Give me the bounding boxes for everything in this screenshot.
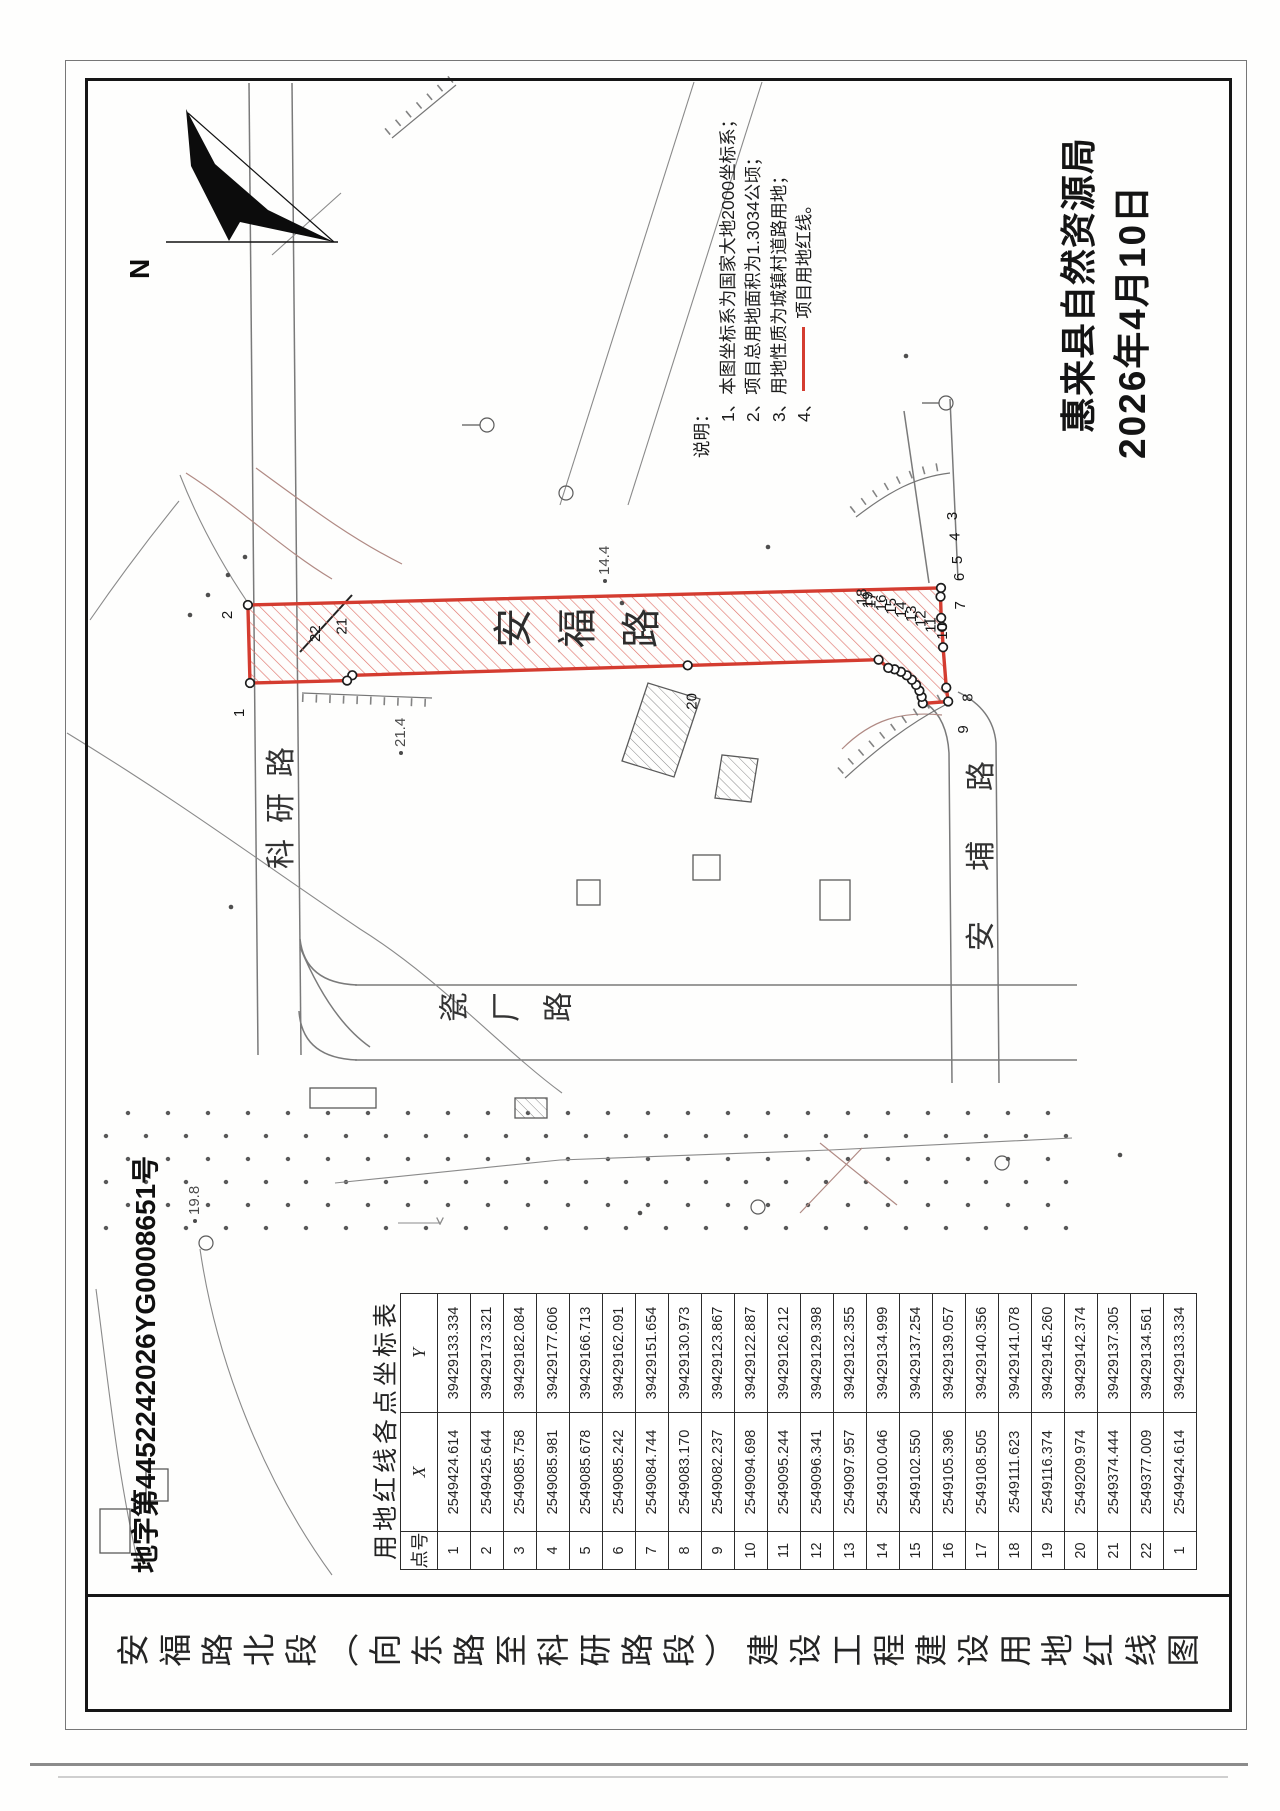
table-cell: 4 (537, 1532, 570, 1570)
scanned-redline-map-page: { "titles": { "drawing_title": "安福路北段（向东… (0, 0, 1280, 1811)
table-cell: 39429133.334 (438, 1294, 471, 1413)
note-item4-text: 项目用地红线。 (794, 196, 814, 319)
table-row: 152549102.55039429137.254 (900, 1294, 933, 1570)
table-row: 52549085.67839429166.713 (570, 1294, 603, 1570)
table-cell: 14 (867, 1532, 900, 1570)
table-cell: 19 (1032, 1532, 1065, 1570)
table-cell: 13 (834, 1532, 867, 1570)
coordinate-table-title: 用地红线各点坐标表 (366, 1299, 402, 1560)
table-cell: 39429141.078 (999, 1294, 1032, 1413)
table-cell: 17 (966, 1532, 999, 1570)
table-cell: 2549094.698 (735, 1413, 768, 1532)
table-cell: 2549095.244 (768, 1413, 801, 1532)
table-cell: 39429129.398 (801, 1294, 834, 1413)
table-row: 102549094.69839429122.887 (735, 1294, 768, 1570)
notes-block: 说明： 1、本图坐标系为国家大地2000坐标系； 2、项目总用地面积为1.303… (690, 111, 818, 458)
table-cell: 3 (504, 1532, 537, 1570)
road-label-anfu: 安福路 (492, 603, 684, 661)
authority-name: 惠来县自然资源局 (1050, 137, 1102, 433)
table-row: 212549374.44439429137.305 (1098, 1294, 1131, 1570)
document-number: 地字第4452242026YG0008651号 (124, 1156, 164, 1573)
table-cell: 39429123.867 (702, 1294, 735, 1413)
table-cell: 16 (933, 1532, 966, 1570)
table-cell: 22 (1131, 1532, 1164, 1570)
table-row: 182549111.62339429141.078 (999, 1294, 1032, 1570)
table-cell: 39429177.606 (537, 1294, 570, 1413)
table-cell: 1 (438, 1532, 471, 1570)
table-cell: 2549424.614 (438, 1413, 471, 1532)
table-cell: 8 (669, 1532, 702, 1570)
table-header-cell: Y (401, 1294, 438, 1413)
table-cell: 7 (636, 1532, 669, 1570)
table-cell: 39429130.973 (669, 1294, 702, 1413)
table-cell: 2549116.374 (1032, 1413, 1065, 1532)
scan-edge-artifact (30, 1763, 1248, 1766)
coordinate-table-body: 12549424.61439429133.33422549425.6443942… (438, 1294, 1197, 1570)
table-cell: 2549084.744 (636, 1413, 669, 1532)
table-cell: 2549085.981 (537, 1413, 570, 1532)
table-row: 32549085.75839429182.084 (504, 1294, 537, 1570)
note-item4-prefix: 4、 (794, 395, 814, 422)
table-row: 122549096.34139429129.398 (801, 1294, 834, 1570)
table-cell: 2549083.170 (669, 1413, 702, 1532)
table-cell: 15 (900, 1532, 933, 1570)
table-cell: 2549082.237 (702, 1413, 735, 1532)
note-item: 3、用地性质为城镇村道路用地； (767, 111, 793, 422)
table-cell: 2549102.550 (900, 1413, 933, 1532)
redline-legend-swatch (802, 327, 805, 391)
table-row: 92549082.23739429123.867 (702, 1294, 735, 1570)
table-row: 12549424.61439429133.334 (1164, 1294, 1197, 1570)
table-cell: 2549424.614 (1164, 1413, 1197, 1532)
table-cell: 39429126.212 (768, 1294, 801, 1413)
table-cell: 9 (702, 1532, 735, 1570)
table-cell: 2549097.957 (834, 1413, 867, 1532)
table-cell: 39429173.321 (471, 1294, 504, 1413)
table-cell: 1 (1164, 1532, 1197, 1570)
table-cell: 39429151.654 (636, 1294, 669, 1413)
table-row: 12549424.61439429133.334 (438, 1294, 471, 1570)
table-row: 132549097.95739429132.355 (834, 1294, 867, 1570)
table-cell: 2549105.396 (933, 1413, 966, 1532)
table-cell: 39429137.254 (900, 1294, 933, 1413)
table-row: 172549108.50539429140.356 (966, 1294, 999, 1570)
table-cell: 2549085.758 (504, 1413, 537, 1532)
north-label: N (124, 259, 156, 279)
table-cell: 11 (768, 1532, 801, 1570)
drawing-title: 安福路北段（向东路至科研路段）建设工程建设用地红线图 (116, 1629, 1208, 1677)
note-item: 2、项目总用地面积为1.3034公顷； (741, 111, 767, 422)
road-label-anbu: 安埔路 (956, 711, 1000, 951)
coordinate-table-header: 点号XY (401, 1294, 438, 1570)
spot-elevation: 21.4 (392, 718, 409, 755)
table-row: 42549085.98139429177.606 (537, 1294, 570, 1570)
table-cell: 39429140.356 (966, 1294, 999, 1413)
table-cell: 39429134.999 (867, 1294, 900, 1413)
table-cell: 2549108.505 (966, 1413, 999, 1532)
table-header-cell: X (401, 1413, 438, 1532)
table-row: 162549105.39639429139.057 (933, 1294, 966, 1570)
table-cell: 12 (801, 1532, 834, 1570)
table-row: 112549095.24439429126.212 (768, 1294, 801, 1570)
table-row: 192549116.37439429145.260 (1032, 1294, 1065, 1570)
note-item: 1、本图坐标系为国家大地2000坐标系； (716, 111, 742, 422)
table-cell: 39429137.305 (1098, 1294, 1131, 1413)
table-row: 72549084.74439429151.654 (636, 1294, 669, 1570)
road-label-keyan: 科研路 (256, 731, 300, 869)
table-cell: 39429139.057 (933, 1294, 966, 1413)
table-cell: 5 (570, 1532, 603, 1570)
spot-elevation: 19.8 (186, 1186, 203, 1223)
title-band-divider (85, 1594, 1232, 1597)
table-row: 222549377.00939429134.561 (1131, 1294, 1164, 1570)
table-cell: 2549085.242 (603, 1413, 636, 1532)
table-cell: 39429133.334 (1164, 1294, 1197, 1413)
table-cell: 6 (603, 1532, 636, 1570)
table-cell: 39429166.713 (570, 1294, 603, 1413)
approval-date: 2026年4月10日 (1102, 184, 1156, 459)
spot-elevation: 14.4 (596, 546, 613, 583)
table-row: 22549425.64439429173.321 (471, 1294, 504, 1570)
table-cell: 39429145.260 (1032, 1294, 1065, 1413)
table-cell: 20 (1065, 1532, 1098, 1570)
table-cell: 2549100.046 (867, 1413, 900, 1532)
road-label-cichang: 瓷厂路 (438, 989, 594, 1033)
table-row: 82549083.17039429130.973 (669, 1294, 702, 1570)
table-cell: 2549096.341 (801, 1413, 834, 1532)
table-cell: 2549209.974 (1065, 1413, 1098, 1532)
table-cell: 2549085.678 (570, 1413, 603, 1532)
table-cell: 39429142.374 (1065, 1294, 1098, 1413)
table-cell: 2549425.644 (471, 1413, 504, 1532)
scan-edge-artifact (58, 1776, 1228, 1778)
table-cell: 39429162.091 (603, 1294, 636, 1413)
table-header-cell: 点号 (401, 1532, 438, 1570)
table-row: 202549209.97439429142.374 (1065, 1294, 1098, 1570)
table-cell: 21 (1098, 1532, 1131, 1570)
table-cell: 2549377.009 (1131, 1413, 1164, 1532)
table-cell: 10 (735, 1532, 768, 1570)
table-row: 62549085.24239429162.091 (603, 1294, 636, 1570)
table-cell: 39429182.084 (504, 1294, 537, 1413)
drawing-sheet: 12345678910111213141516171819202122 安福路北… (0, 0, 1280, 1811)
table-cell: 39429134.561 (1131, 1294, 1164, 1413)
table-cell: 39429132.355 (834, 1294, 867, 1413)
table-cell: 2549374.444 (1098, 1413, 1131, 1532)
note-item-legend: 4、项目用地红线。 (792, 111, 818, 422)
coordinate-table: 点号XY 12549424.61439429133.33422549425.64… (400, 1293, 1197, 1570)
table-row: 142549100.04639429134.999 (867, 1294, 900, 1570)
table-cell: 18 (999, 1532, 1032, 1570)
table-cell: 2549111.623 (999, 1413, 1032, 1532)
table-cell: 39429122.887 (735, 1294, 768, 1413)
notes-heading: 说明： (690, 111, 716, 458)
table-cell: 2 (471, 1532, 504, 1570)
